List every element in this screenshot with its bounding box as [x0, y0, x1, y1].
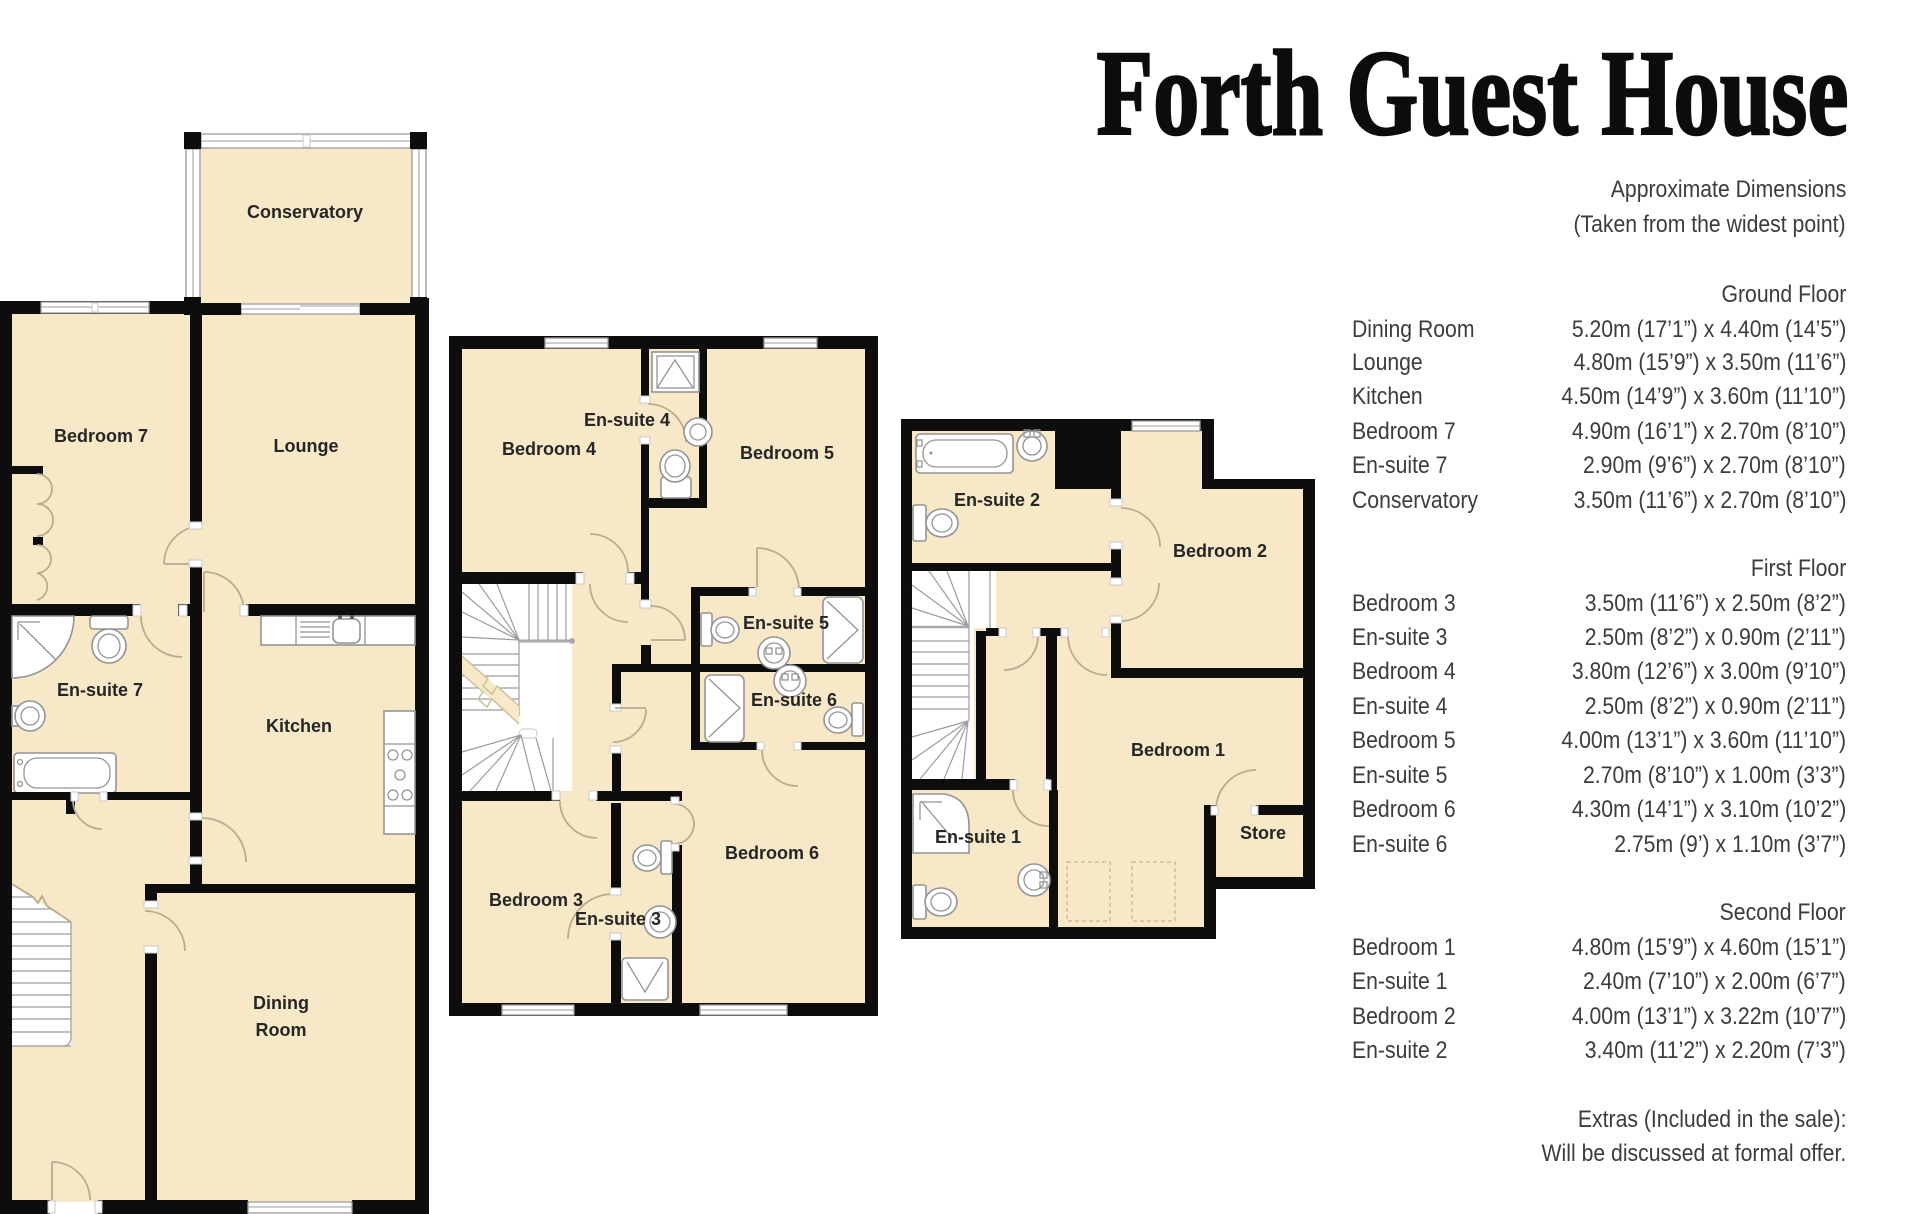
svg-text:Bedroom 5: Bedroom 5: [740, 443, 834, 463]
svg-text:Bedroom 6: Bedroom 6: [725, 843, 819, 863]
svg-text:Conservatory: Conservatory: [247, 202, 363, 222]
svg-text:Bedroom 3: Bedroom 3: [489, 890, 583, 910]
svg-text:Bedroom 4: Bedroom 4: [502, 439, 596, 459]
svg-text:En-suite 4: En-suite 4: [584, 410, 670, 430]
svg-text:En-suite 1: En-suite 1: [935, 827, 1021, 847]
svg-text:Bedroom 7: Bedroom 7: [54, 426, 148, 446]
svg-text:Bedroom 2: Bedroom 2: [1173, 541, 1267, 561]
svg-text:En-suite 7: En-suite 7: [57, 680, 143, 700]
svg-text:Store: Store: [1240, 823, 1286, 843]
svg-text:En-suite 3: En-suite 3: [575, 909, 661, 929]
svg-text:Dining: Dining: [253, 993, 309, 1013]
svg-text:Kitchen: Kitchen: [266, 716, 332, 736]
svg-text:Lounge: Lounge: [274, 436, 339, 456]
svg-text:Bedroom 1: Bedroom 1: [1131, 740, 1225, 760]
svg-text:En-suite 5: En-suite 5: [743, 613, 829, 633]
svg-text:En-suite 6: En-suite 6: [751, 690, 837, 710]
svg-text:Room: Room: [256, 1020, 307, 1040]
svg-text:En-suite 2: En-suite 2: [954, 490, 1040, 510]
